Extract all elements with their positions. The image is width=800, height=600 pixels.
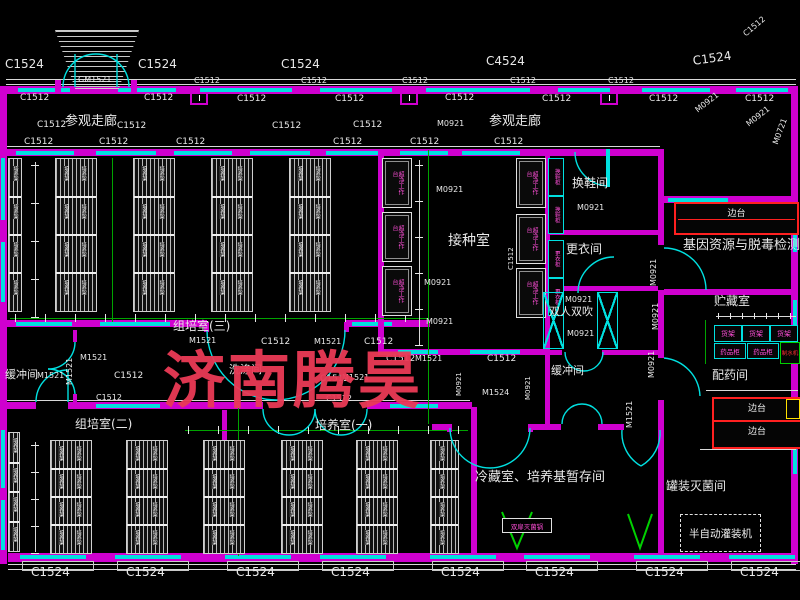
code-label: C1524 (138, 58, 177, 70)
code-label: M0921 (456, 372, 463, 396)
code-label: M1521 (66, 358, 74, 385)
code-label: C1512 (114, 372, 143, 381)
cad-floorplan-canvas: 济南腾昊 培养架培养架培养架培养架培养架培养架培养架培养架培养架培养架培养架培养… (0, 0, 800, 600)
watermark: 济南腾昊 (163, 330, 423, 420)
door-arc (582, 404, 602, 424)
room-label: 更衣间 (566, 243, 602, 255)
sterilizer-symbol (628, 514, 652, 548)
code-label: C1512 (176, 138, 205, 147)
code-label: C1512 (510, 77, 536, 85)
code-label: C1512 (20, 94, 49, 103)
code-label: C1512 (96, 394, 122, 402)
code-label: C1512 (402, 77, 428, 85)
door-arc (578, 257, 614, 293)
room-label: 缓冲间 (5, 369, 38, 380)
room-label: 缓冲间 (551, 365, 584, 376)
code-label: M0921 (650, 259, 658, 286)
room-label: 罐装灭菌间 (666, 480, 726, 492)
code-label: C1512 (508, 247, 515, 270)
code-label: M0921 (426, 318, 453, 326)
code-label: C1512 (144, 94, 173, 103)
code-label: C1512 (745, 95, 774, 104)
code-label: M0921 (577, 204, 604, 212)
code-label: C1512 (487, 355, 516, 364)
code-label: C1512 (37, 121, 66, 130)
code-label: C1524 (126, 566, 165, 578)
code-label: C1524 (535, 566, 574, 578)
code-label: C1512 (335, 95, 364, 104)
code-label: C1512 (237, 95, 266, 104)
code-label: C1524 (740, 566, 779, 578)
code-label: M0921 (437, 120, 464, 128)
room-label: 冷藏室、培养基暂存间 (475, 471, 605, 484)
code-label: M0921 (424, 279, 451, 287)
code-label: C4524 (486, 55, 525, 67)
code-label: M1524 (482, 389, 509, 397)
code-label: M0921 (567, 330, 594, 338)
double-door-autoclave-label: 双扉灭菌锅 (502, 518, 552, 533)
door-arc (622, 430, 641, 466)
code-label: M0921 (525, 376, 532, 400)
code-label: M1521 (37, 372, 64, 380)
door-arc (584, 352, 603, 371)
code-label: C1524 (281, 58, 320, 70)
code-label: C1512 (272, 122, 301, 131)
code-label: C1512 (117, 122, 146, 131)
door-arc (664, 358, 700, 396)
code-label: C1512 (542, 95, 571, 104)
code-label: C1512 (194, 77, 220, 85)
code-label: C1512 (99, 138, 128, 147)
code-label: M1521 (80, 354, 107, 362)
room-label: 组培室(二) (75, 418, 132, 430)
door-arc (641, 430, 660, 466)
room-label: 基因资源与脱毒检测室 (683, 239, 800, 252)
code-label: M1521 (626, 401, 634, 428)
room-label: 贮藏室 (714, 295, 750, 307)
room-label: GM1521 (78, 76, 111, 84)
code-label: C1512 (445, 94, 474, 103)
code-label: C1512 (301, 77, 327, 85)
code-label: M0921 (652, 303, 660, 330)
code-label: C1512 (333, 138, 362, 147)
room-label: 参观走廊 (65, 115, 117, 128)
code-label: C1512 (608, 77, 634, 85)
code-label: C1524 (441, 566, 480, 578)
room-label: 参观走廊 (489, 115, 541, 128)
room-label: 接种室 (448, 234, 490, 248)
room-label: 双人双吹 (549, 306, 593, 317)
code-label: C1524 (331, 566, 370, 578)
door-arc (490, 428, 530, 468)
code-label: M0921 (565, 296, 592, 304)
room-label: 培养室(一) (315, 419, 372, 431)
code-label: C1524 (645, 566, 684, 578)
code-label: C1524 (5, 58, 44, 70)
code-label: C1524 (31, 566, 70, 578)
code-label: M0921 (436, 186, 463, 194)
room-label: 配药间 (712, 369, 748, 381)
door-arc (664, 248, 706, 290)
code-label: C1524 (236, 566, 275, 578)
code-label: C1512 (649, 95, 678, 104)
code-label: C1512 (24, 138, 53, 147)
room-label: 换鞋间 (572, 177, 608, 189)
code-label: C1512 (494, 138, 523, 147)
door-arcs-layer (0, 0, 800, 600)
code-label: C1512 (410, 138, 439, 147)
door-arc (450, 428, 490, 468)
code-label: M0921 (648, 351, 656, 378)
code-label: C1512 (353, 121, 382, 130)
door-arc (562, 404, 582, 424)
